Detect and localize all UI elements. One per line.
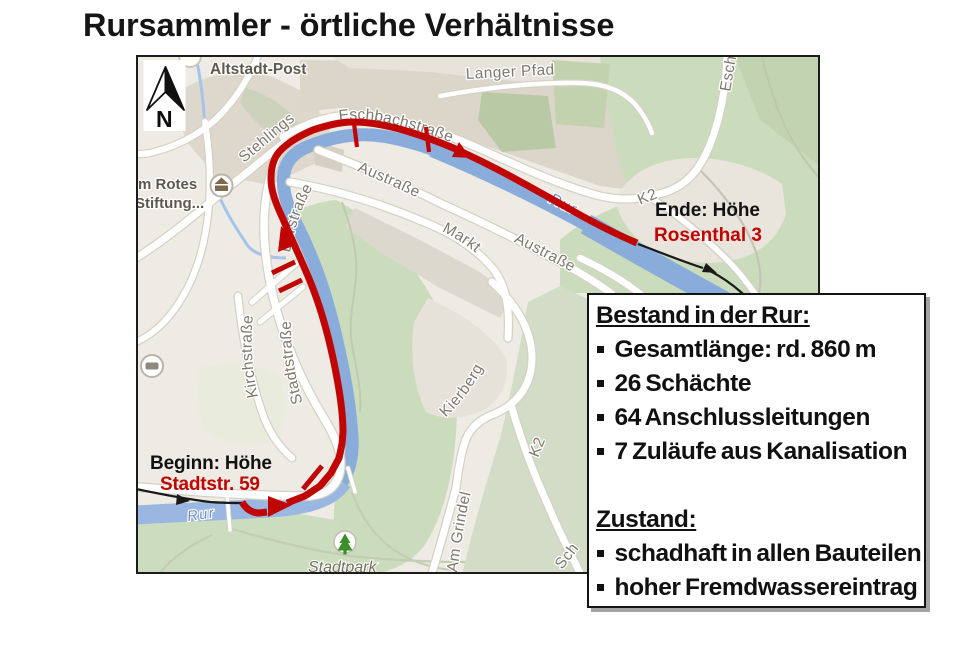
svg-text:Altstadt-Post: Altstadt-Post [210,61,306,78]
svg-text:N: N [156,106,173,132]
svg-text:m Rotes: m Rotes [138,176,197,193]
svg-text:Rosenthal 3: Rosenthal 3 [654,225,762,246]
svg-text:Stadtpark: Stadtpark [308,559,377,574]
svg-text:Ende: Höhe: Ende: Höhe [655,200,760,221]
svg-text:Stadtstr. 59: Stadtstr. 59 [160,474,260,495]
svg-text:Beginn: Höhe: Beginn: Höhe [150,453,272,474]
svg-text:Stiftung...: Stiftung... [136,195,204,212]
